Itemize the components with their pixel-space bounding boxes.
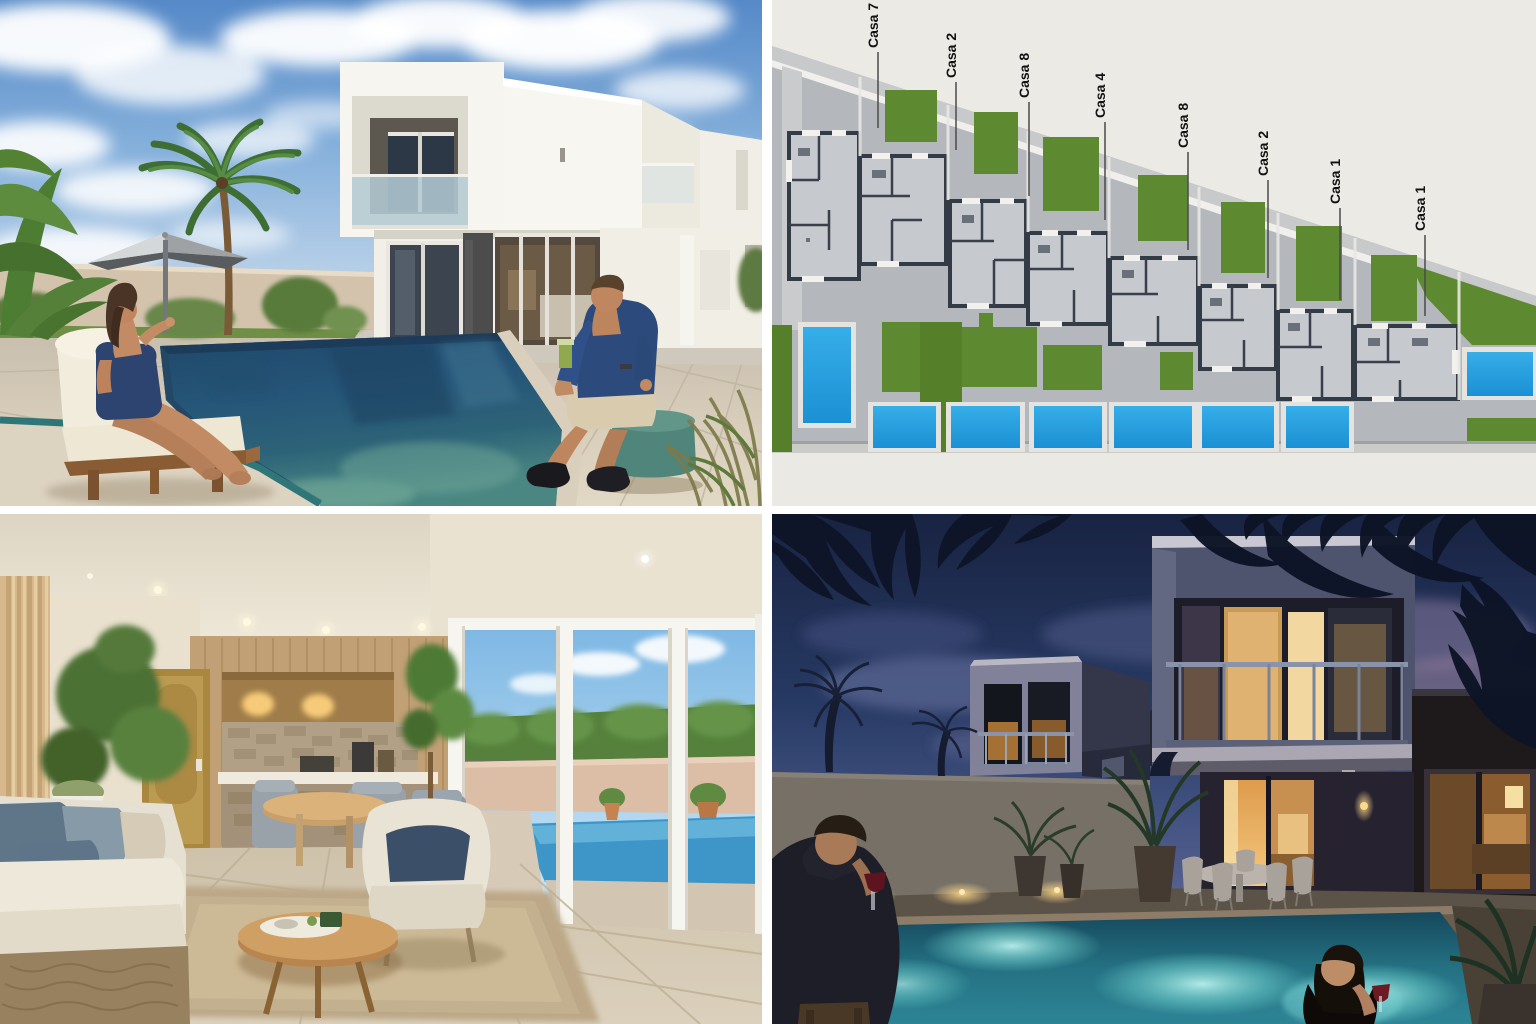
svg-text:Casa 1: Casa 1 [1327, 159, 1343, 204]
svg-text:Casa 2: Casa 2 [943, 33, 959, 78]
svg-text:Casa 8: Casa 8 [1175, 103, 1191, 148]
svg-text:Casa 1: Casa 1 [1412, 186, 1428, 231]
svg-text:Casa 2: Casa 2 [1255, 131, 1271, 176]
svg-text:Casa 7: Casa 7 [865, 3, 881, 48]
svg-text:Casa 8: Casa 8 [1016, 53, 1032, 98]
svg-text:Casa 4: Casa 4 [1092, 73, 1108, 118]
